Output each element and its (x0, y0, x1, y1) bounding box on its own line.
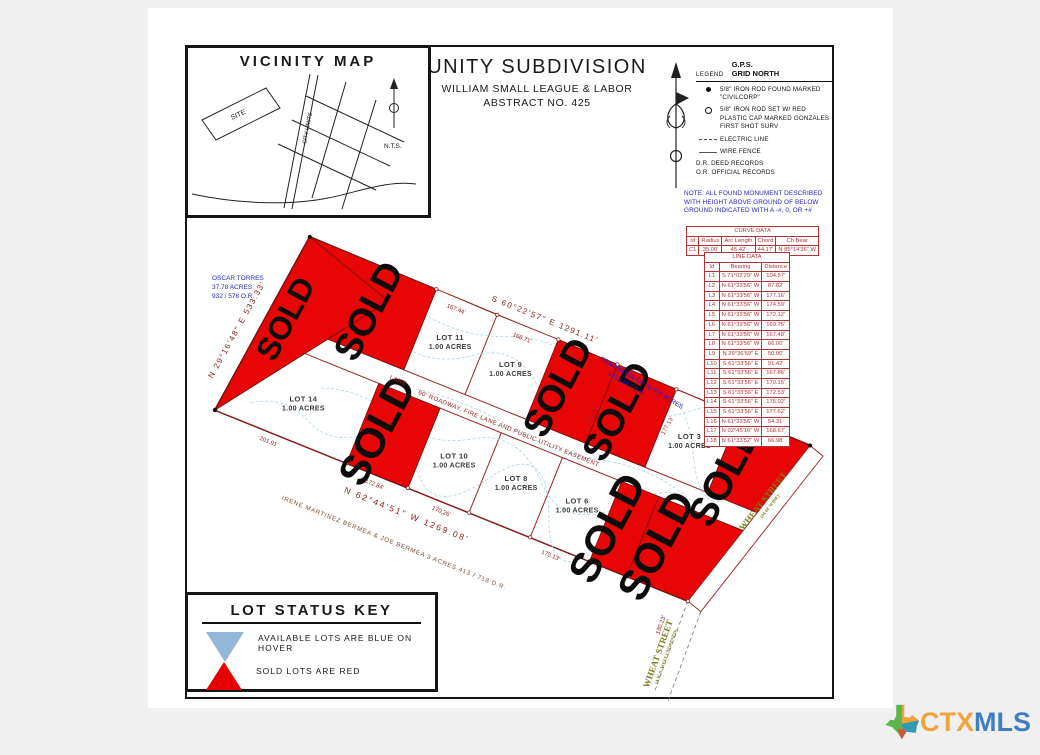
title-block: UNITY SUBDIVISION WILLIAM SMALL LEAGUE &… (392, 56, 682, 109)
ctx-text: CTX (920, 707, 974, 738)
gps-grid-north: G.P.S.GRID NORTH (732, 60, 780, 79)
lot-6-label: LOT 6 (566, 497, 589, 506)
vicinity-title: VICINITY MAP (188, 53, 428, 70)
abstract-subtitle: ABSTRACT NO. 425 (392, 97, 682, 109)
nts-label: N.T.S. (384, 143, 402, 150)
plat-sheet: LOT 111.00 ACRES LOT 91.00 ACRES LOT 31.… (148, 8, 893, 708)
line-data-row: L6N 61°33'56" W169.75' (705, 320, 790, 330)
svg-text:1.00 ACRES: 1.00 ACRES (489, 371, 532, 378)
subdivision-title: UNITY SUBDIVISION (392, 56, 682, 79)
legend-label: LEGEND (696, 72, 724, 79)
line-data-row: L14S 61°33'56" E175.02' (705, 398, 790, 408)
line-data-row: L11S 61°33'56" E167.86' (705, 369, 790, 379)
wheat-street-lower-label: WHEAT STREET (A.K.A. WEST UNOPENED) (641, 618, 680, 691)
sold-lot-triangle-icon (206, 662, 242, 690)
svg-text:201.91': 201.91' (258, 436, 278, 449)
line-data-row: L4N 61°33'56" W174.59' (705, 301, 790, 311)
official-records-abbr: O.R. OFFICIAL RECORDS (696, 169, 832, 178)
line-data-row: L10S 61°33'56" E91.42' (705, 359, 790, 369)
texas-icon (884, 702, 920, 742)
vicinity-map: VICINITY MAP SITE CITY LIMITS N.T.S. (185, 45, 431, 218)
line-data-row: L7N 61°33'56" W167.48' (705, 330, 790, 340)
line-data-row: L3N 61°33'56" W177.16' (705, 291, 790, 301)
wire-fence-icon (696, 148, 720, 156)
mls-text: MLS (974, 707, 1031, 738)
lot-8-label: LOT 8 (504, 474, 527, 483)
available-lot-label: AVAILABLE LOTS ARE BLUE ON HOVER (258, 633, 435, 653)
league-subtitle: WILLIAM SMALL LEAGUE & LABOR (392, 83, 682, 95)
line-data-row: L5N 61°33'56" W172.12' (705, 311, 790, 321)
svg-text:170.26': 170.26' (431, 506, 451, 519)
svg-text:1.00 ACRES: 1.00 ACRES (495, 485, 538, 492)
ctxmls-logo[interactable]: CTXMLS (884, 702, 1031, 742)
vicinity-map-drawing: SITE CITY LIMITS N.T.S. (188, 72, 422, 210)
line-data-row: L13S 61°33'56" E172.53' (705, 388, 790, 398)
sold-lot-label: SOLD LOTS ARE RED (256, 666, 360, 676)
monument-note: NOTE: ALL FOUND MONUMENT DESCRIBED WITH … (684, 190, 834, 216)
svg-text:OSCAR TORRES: OSCAR TORRES (212, 275, 264, 282)
line-data-table: LINE DATA Id Bearing Distance L1S 71°02'… (704, 252, 790, 447)
svg-text:1.00 ACRES: 1.00 ACRES (429, 344, 472, 351)
electric-line-icon (696, 136, 720, 144)
line-data-row: L18N 61°33'52" W66.98' (705, 437, 790, 447)
svg-text:1.00 ACRES: 1.00 ACRES (282, 406, 325, 413)
page: { "title_block": { "title": "UNITY SUBDI… (0, 0, 1040, 755)
line-data-row: L8N 61°33'56" W66.00' (705, 340, 790, 350)
lot-11-label: LOT 11 (436, 333, 463, 342)
svg-text:1.00 ACRES: 1.00 ACRES (433, 462, 476, 469)
line-data-row: L9N 29°36'59" E50.00' (705, 349, 790, 359)
deed-records-abbr: D.R. DEED RECORDS (696, 160, 832, 169)
line-data-row: L17N 02°45'16" W168.67' (705, 427, 790, 437)
line-data-row: L1S 71°02'29" W104.57' (705, 272, 790, 282)
city-limits-label: CITY LIMITS (302, 112, 314, 145)
svg-text:932 / 578 O.R.: 932 / 578 O.R. (212, 293, 254, 300)
lot-3-label: LOT 3 (678, 432, 701, 441)
lot-10-label: LOT 10 (440, 451, 468, 460)
iron-rod-set-icon (696, 106, 720, 131)
line-data-row: L16N 61°33'56" W54.31' (705, 417, 790, 427)
svg-text:175.13': 175.13' (540, 550, 560, 563)
line-data-row: L2N 61°33'56" W87.82' (705, 282, 790, 292)
lot-9-label: LOT 9 (499, 360, 522, 369)
site-label: SITE (230, 109, 247, 122)
iron-rod-found-icon (696, 86, 720, 103)
line-data-row: L15S 61°33'56" E177.62' (705, 408, 790, 418)
lot-14-label: LOT 14 (289, 395, 317, 404)
status-key-title: LOT STATUS KEY (188, 602, 435, 619)
line-data-row: L12S 61°33'56" E170.15' (705, 378, 790, 388)
vicinity-north-arrow-icon (390, 78, 398, 89)
available-lot-triangle-icon (206, 632, 244, 662)
svg-text:37.78 ACRES: 37.78 ACRES (212, 284, 253, 291)
legend: LEGEND G.P.S.GRID NORTH 5/8" IRON ROD FO… (696, 60, 832, 178)
lot-status-key: LOT STATUS KEY AVAILABLE LOTS ARE BLUE O… (185, 592, 438, 692)
